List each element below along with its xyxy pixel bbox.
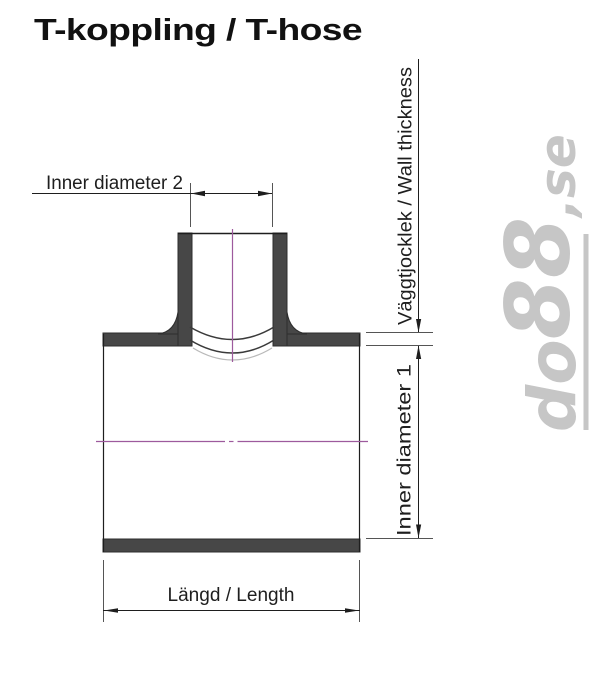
pipe-body — [103, 233, 360, 552]
id1-arrow-up — [416, 346, 421, 360]
id2-arrow-left — [191, 191, 205, 197]
body-bottom-wall — [103, 539, 360, 552]
id2-arrow-right — [258, 191, 272, 197]
wt-arrow-down — [416, 319, 421, 333]
t-coupling-diagram: do88,se T-koppling / T-hose — [0, 0, 600, 682]
branch-right-wall — [273, 233, 287, 346]
length-arrow-left — [104, 608, 118, 613]
dim-length: Längd / Length — [103, 560, 360, 622]
branch-left-wall — [178, 233, 192, 346]
watermark-number: 88 — [487, 217, 590, 339]
id1-arrow-down — [416, 525, 421, 539]
dim-inner-diameter-2: Inner diameter 2 — [32, 173, 273, 227]
id1-label: Inner diameter 1 — [395, 364, 416, 536]
wt-label: Väggtjocklek / Wall thickness — [396, 67, 417, 325]
pipe-outlines — [104, 234, 360, 553]
branch-right-fillet — [287, 312, 307, 334]
watermark-suffix: ,se — [529, 134, 587, 219]
watermark-logo: do88,se — [487, 134, 591, 432]
technical-drawing-page: do88,se T-koppling / T-hose — [0, 0, 600, 682]
length-label: Längd / Length — [168, 585, 295, 606]
branch-left-fillet — [158, 312, 178, 334]
dim-wall-thickness: Väggtjocklek / Wall thickness — [366, 59, 433, 346]
watermark-prefix: do — [514, 339, 591, 432]
dim-inner-diameter-1: Inner diameter 1 — [366, 346, 433, 539]
page-title: T-koppling / T-hose — [34, 12, 362, 47]
watermark-text: do88,se — [487, 134, 591, 432]
length-arrow-right — [345, 608, 359, 613]
id2-label: Inner diameter 2 — [46, 173, 183, 194]
